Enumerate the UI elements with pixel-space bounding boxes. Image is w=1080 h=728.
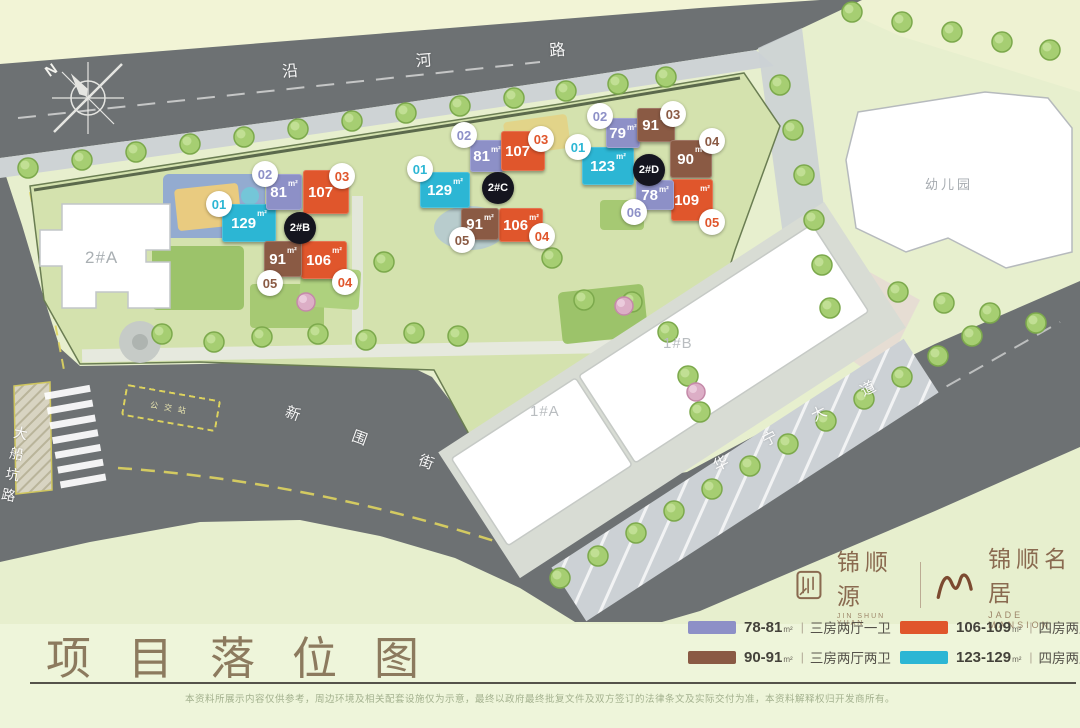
- unit-area-suffix: m²: [529, 213, 539, 222]
- jade-mansion-logo-icon: [935, 566, 974, 604]
- legend-range: 78-81: [744, 619, 782, 636]
- legend-area-unit: m²: [783, 625, 792, 634]
- legend-type: 三房两厅一卫: [810, 617, 891, 637]
- legend-separator: |: [1029, 620, 1032, 634]
- unit-area-suffix: m²: [453, 177, 463, 186]
- legend-item: 106-109m² | 四房两厅两卫: [900, 617, 1080, 637]
- unit-number-badge-2b-02: 02: [252, 161, 278, 187]
- unit-area-value: 91: [269, 251, 286, 268]
- unit-number-badge-2b-01: 01: [206, 191, 232, 217]
- page-title: 项目落位图: [46, 622, 456, 687]
- unit-area-value: 123: [590, 158, 615, 175]
- unit-area-suffix: m²: [491, 145, 501, 154]
- tower-badge-2d: 2#D: [633, 154, 665, 186]
- unit-area-suffix: m²: [627, 123, 637, 132]
- legend-area-unit: m²: [1012, 625, 1021, 634]
- legend-type: 三房两厅两卫: [810, 647, 891, 667]
- legend-separator: |: [801, 620, 804, 634]
- unit-area-value: 129: [231, 215, 256, 232]
- unit-area-value: 106: [503, 217, 528, 234]
- unit-area-suffix: m²: [659, 185, 669, 194]
- unit-number-badge-2b-05: 05: [257, 270, 283, 296]
- legend-range: 90-91: [744, 649, 782, 666]
- legend-separator: |: [801, 650, 804, 664]
- building-label-1a: 1#A: [530, 403, 560, 420]
- legend-item: 123-129m² | 四房两厅两卫: [900, 647, 1080, 667]
- legend-swatch-brown: [688, 651, 736, 664]
- unit-number-badge-2d-02: 02: [587, 103, 613, 129]
- unit-area-value: 81: [270, 184, 287, 201]
- unit-area-suffix: m²: [257, 209, 267, 218]
- disclaimer-text: 本资料所展示内容仅供参考，周边环境及相关配套设施仅为示意，最终以政府最终批复文件…: [0, 691, 1080, 705]
- unit-number-badge-2c-05: 05: [449, 227, 475, 253]
- compass-icon: [52, 62, 124, 134]
- unit-number-badge-2c-04: 04: [529, 223, 555, 249]
- unit-area-value: 91: [642, 117, 659, 134]
- unit-number-badge-2d-05: 05: [699, 209, 725, 235]
- brand-right-name: 锦顺名居: [988, 540, 1080, 608]
- legend-range: 106-109: [956, 619, 1011, 636]
- unit-area-value: 90: [677, 151, 694, 168]
- tower-badge-2c: 2#C: [482, 172, 514, 204]
- building-label-1b: 1#B: [663, 335, 693, 352]
- site-plan-poster: 沿河路 大船坑路 新围街 华宁大道 N 公交站 2#A 1#A 1#B 幼儿园 …: [0, 0, 1080, 728]
- unit-area-value: 107: [505, 143, 530, 160]
- legend-swatch-cyan: [900, 651, 948, 664]
- unit-area-suffix: m²: [484, 213, 494, 222]
- unit-area-value: 81: [473, 148, 490, 165]
- unit-number-badge-2c-02: 02: [451, 122, 477, 148]
- legend-area-unit: m²: [783, 655, 792, 664]
- legend-type: 四房两厅两卫: [1039, 647, 1080, 667]
- unit-area-value: 107: [308, 184, 333, 201]
- jinshunyuan-logo-icon: [795, 565, 823, 605]
- unit-number-badge-2d-01: 01: [565, 134, 591, 160]
- unit-number-badge-2d-03: 03: [660, 101, 686, 127]
- unit-area-value: 109: [674, 192, 699, 209]
- unit-number-badge-2b-03: 03: [329, 163, 355, 189]
- unit-area-suffix: m²: [700, 184, 710, 193]
- legend-swatch-purple: [688, 621, 736, 634]
- brand-left-name: 锦顺源: [837, 543, 906, 611]
- legend-area-unit: m²: [1012, 655, 1021, 664]
- unit-area-suffix: m²: [616, 152, 626, 161]
- legend: 78-81m² | 三房两厅一卫 106-109m² | 四房两厅两卫 90-9…: [688, 617, 1080, 667]
- building-label-2a: 2#A: [85, 248, 118, 268]
- unit-area-suffix: m²: [332, 246, 342, 255]
- tower-badge-2b: 2#B: [284, 212, 316, 244]
- unit-area-suffix: m²: [287, 246, 297, 255]
- unit-number-badge-2b-04: 04: [332, 269, 358, 295]
- unit-block-2d-01: 123m²: [582, 147, 634, 185]
- footer-divider-line: [30, 682, 1076, 684]
- brand-divider: [920, 562, 921, 608]
- legend-item: 78-81m² | 三房两厅一卫: [688, 617, 900, 637]
- unit-area-value: 129: [427, 182, 452, 199]
- legend-range: 123-129: [956, 649, 1011, 666]
- unit-number-badge-2d-06: 06: [621, 199, 647, 225]
- building-label-kindergarten: 幼儿园: [925, 174, 973, 193]
- unit-area-suffix: m²: [288, 179, 298, 188]
- legend-swatch-orange: [900, 621, 948, 634]
- legend-item: 90-91m² | 三房两厅两卫: [688, 647, 900, 667]
- unit-area-value: 106: [306, 252, 331, 269]
- unit-number-badge-2c-01: 01: [407, 156, 433, 182]
- unit-number-badge-2d-04: 04: [699, 128, 725, 154]
- legend-type: 四房两厅两卫: [1039, 617, 1080, 637]
- unit-area-value: 79: [609, 125, 626, 142]
- unit-number-badge-2c-03: 03: [528, 126, 554, 152]
- unit-block-2c-02: 81m²: [470, 140, 504, 172]
- unit-area-value: 78: [641, 187, 658, 204]
- legend-separator: |: [1029, 650, 1032, 664]
